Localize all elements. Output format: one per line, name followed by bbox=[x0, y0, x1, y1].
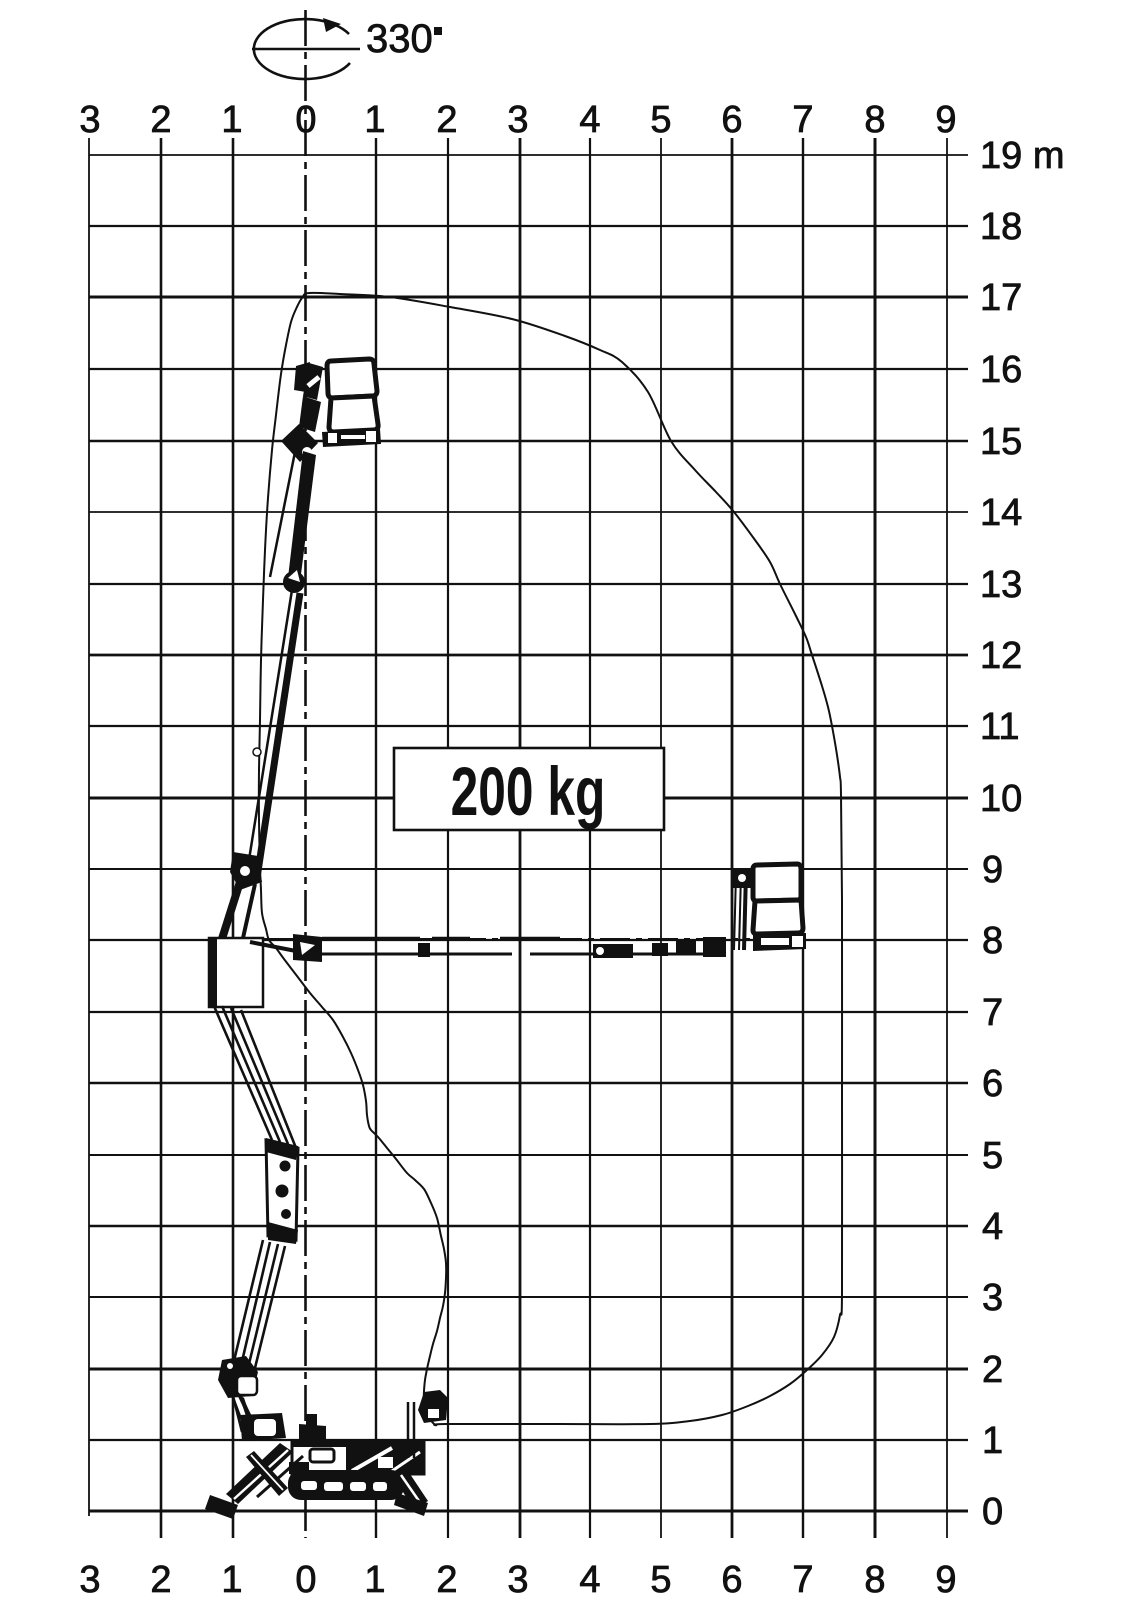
svg-text:10: 10 bbox=[980, 778, 1022, 820]
svg-text:19 m: 19 m bbox=[980, 135, 1064, 177]
svg-text:17: 17 bbox=[980, 277, 1022, 319]
svg-text:3: 3 bbox=[79, 99, 100, 141]
svg-text:8: 8 bbox=[864, 99, 885, 141]
svg-text:3: 3 bbox=[507, 99, 528, 141]
svg-text:13: 13 bbox=[980, 564, 1022, 606]
svg-text:11: 11 bbox=[980, 706, 1019, 748]
svg-text:1: 1 bbox=[364, 1559, 385, 1600]
svg-text:1: 1 bbox=[364, 99, 385, 141]
svg-text:5: 5 bbox=[650, 99, 671, 141]
svg-text:18: 18 bbox=[980, 206, 1022, 248]
svg-text:2: 2 bbox=[150, 1559, 171, 1600]
svg-text:12: 12 bbox=[980, 635, 1022, 677]
svg-text:7: 7 bbox=[792, 99, 813, 141]
svg-text:200 kg: 200 kg bbox=[451, 753, 606, 830]
svg-text:9: 9 bbox=[982, 849, 1003, 891]
svg-text:9: 9 bbox=[935, 1559, 956, 1600]
svg-text:3: 3 bbox=[507, 1559, 528, 1600]
svg-text:5: 5 bbox=[982, 1135, 1003, 1177]
svg-text:8: 8 bbox=[982, 920, 1003, 962]
svg-text:9: 9 bbox=[935, 99, 956, 141]
svg-text:6: 6 bbox=[721, 1559, 742, 1600]
svg-text:1: 1 bbox=[982, 1420, 1003, 1462]
svg-text:4: 4 bbox=[579, 1559, 600, 1600]
svg-text:2: 2 bbox=[150, 99, 171, 141]
svg-text:0: 0 bbox=[982, 1491, 1003, 1533]
svg-text:2: 2 bbox=[436, 1559, 457, 1600]
svg-text:15: 15 bbox=[980, 421, 1022, 463]
svg-text:2: 2 bbox=[982, 1349, 1003, 1391]
svg-text:0: 0 bbox=[295, 1559, 316, 1600]
svg-text:6: 6 bbox=[982, 1063, 1003, 1105]
svg-text:5: 5 bbox=[650, 1559, 671, 1600]
svg-text:3: 3 bbox=[79, 1559, 100, 1600]
svg-text:3: 3 bbox=[982, 1277, 1003, 1319]
svg-text:1: 1 bbox=[221, 99, 242, 141]
svg-text:4: 4 bbox=[579, 99, 600, 141]
svg-text:7: 7 bbox=[792, 1559, 813, 1600]
svg-text:6: 6 bbox=[721, 99, 742, 141]
svg-text:7: 7 bbox=[982, 992, 1003, 1034]
svg-text:330: 330 bbox=[366, 17, 433, 61]
svg-text:14: 14 bbox=[980, 492, 1022, 534]
svg-text:1: 1 bbox=[221, 1559, 242, 1600]
svg-text:2: 2 bbox=[436, 99, 457, 141]
svg-text:4: 4 bbox=[982, 1206, 1003, 1248]
svg-text:16: 16 bbox=[980, 349, 1022, 391]
svg-text:8: 8 bbox=[864, 1559, 885, 1600]
svg-text:0: 0 bbox=[295, 99, 316, 141]
